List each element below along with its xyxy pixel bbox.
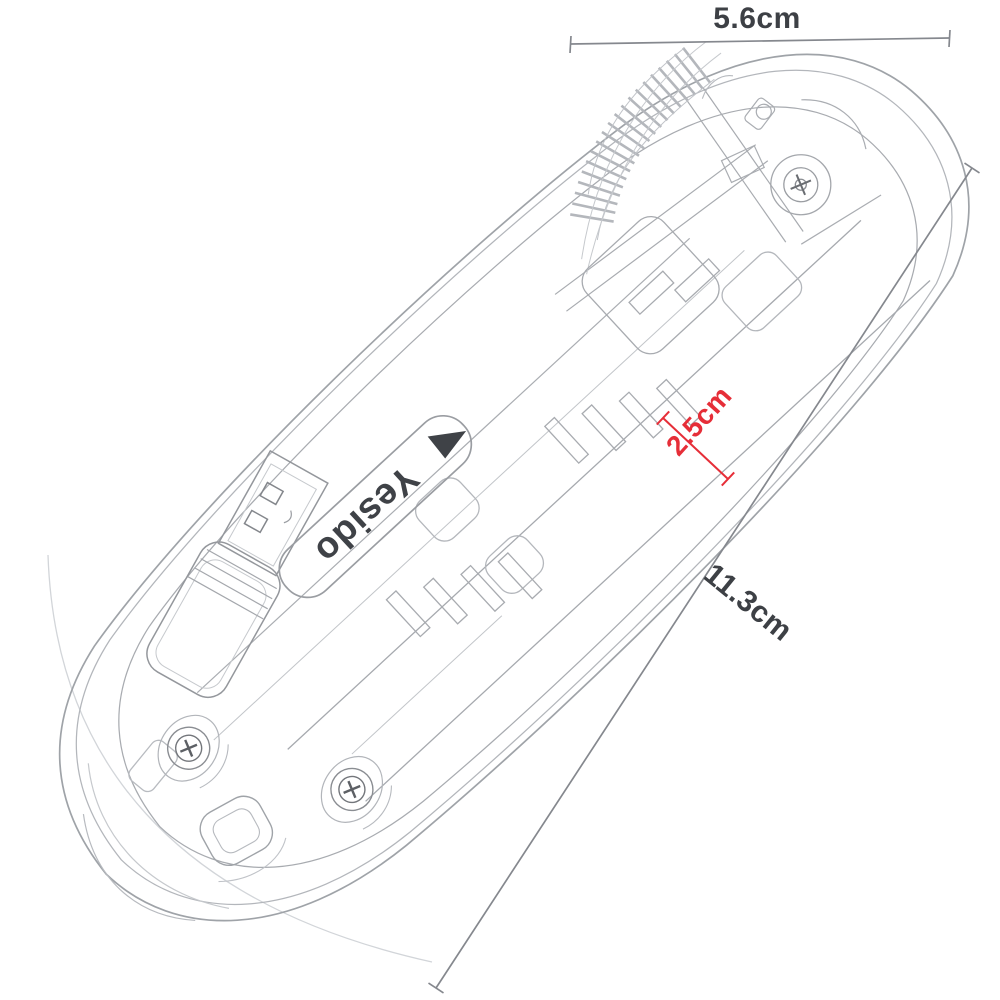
mouse-technical-drawing: Yesido: [0, 0, 1000, 1000]
dimension-annotations: 5.6cm 11.3cm 2.5cm: [429, 2, 980, 993]
mouse-outer-shell-outline: [0, 0, 1000, 1000]
optical-sensor: [187, 786, 293, 890]
dim-width-tick-right: [949, 30, 950, 47]
mouse-cavity-outline: [34, 21, 996, 947]
dim-height-label: 2.5cm: [660, 380, 738, 462]
usb-receiver: [139, 446, 337, 705]
internal-modules: [85, 168, 825, 872]
outer-faint-outline: [48, 555, 432, 962]
pcb-edge-lines: [183, 138, 930, 849]
brand-arrow-icon: [426, 415, 470, 459]
front-screw-cross-icon: [786, 170, 815, 199]
front-latch: [743, 97, 776, 131]
usb-window-slot-2: [260, 483, 283, 505]
mouse-dimension-diagram: Yesido: [0, 0, 1000, 1000]
dim-width-label: 5.6cm: [713, 2, 801, 35]
mouse-inner-shell-outline: [0, 0, 1000, 992]
usb-window-slot-1: [244, 510, 267, 532]
dim-length-tick-bottom: [429, 983, 444, 993]
dim-length-tick-top: [965, 163, 980, 173]
usb-connector: [218, 451, 327, 576]
dim-width-line: [571, 38, 949, 44]
scroll-wheel: [513, 32, 779, 274]
dim-length-label: 11.3cm: [698, 557, 799, 648]
phillips-cross-icon: [340, 778, 364, 802]
front-strut: [514, 84, 821, 386]
brand-badge: Yesido: [268, 405, 482, 609]
dim-width-tick-left: [570, 36, 571, 53]
diagram-canvas: Yesido: [0, 0, 1000, 1000]
phillips-cross-icon: [177, 736, 201, 760]
front-assembly: [716, 77, 903, 264]
screw-left: [146, 703, 241, 799]
